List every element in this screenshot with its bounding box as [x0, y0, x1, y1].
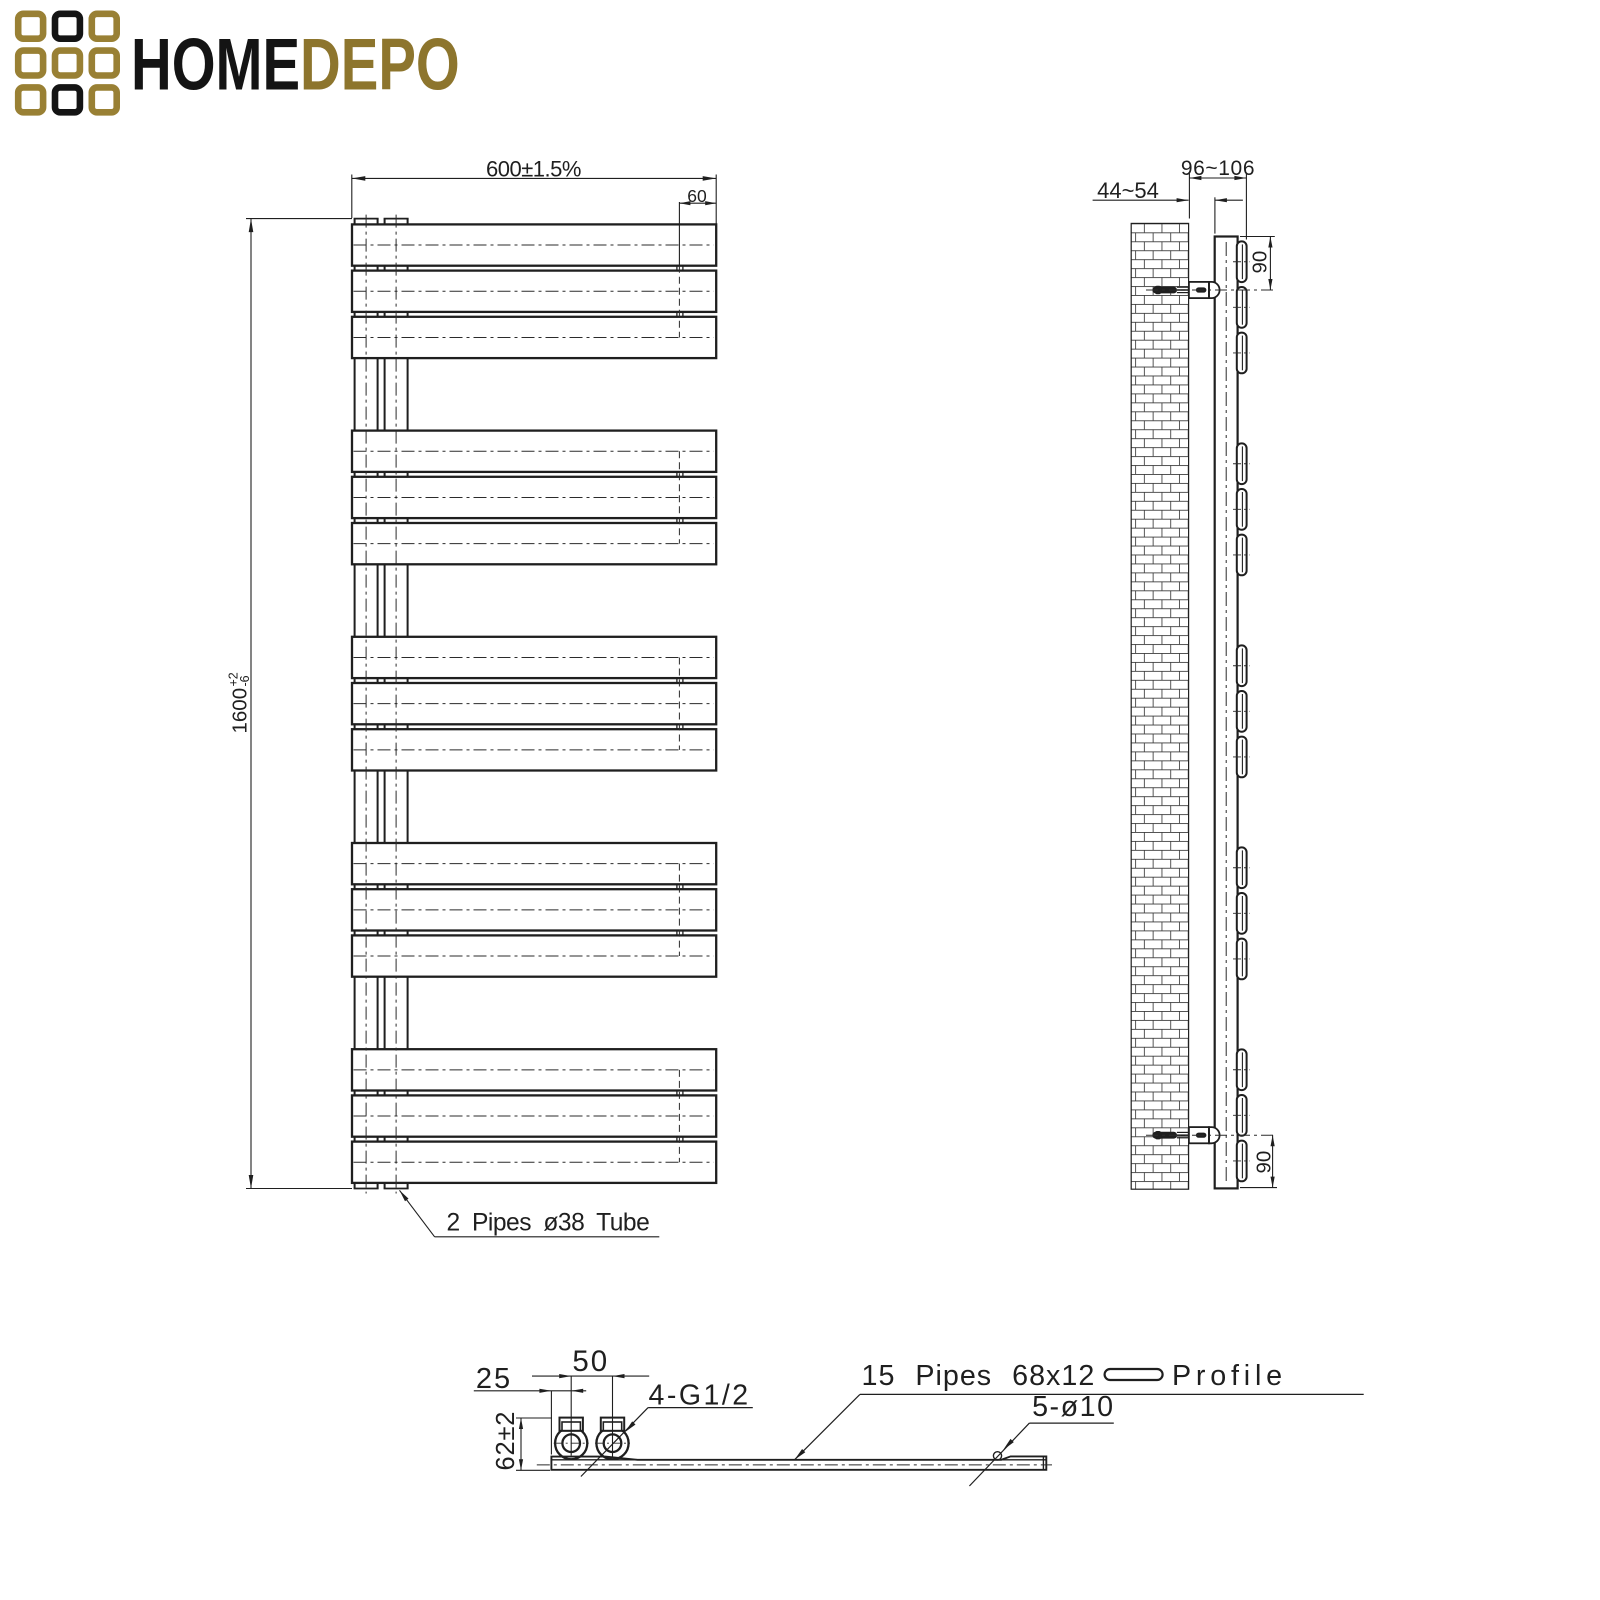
svg-text:-6: -6	[238, 675, 252, 686]
svg-text:2 Pipes ø38 Tube: 2 Pipes ø38 Tube	[447, 1210, 650, 1237]
svg-text:HOMEDEPO: HOMEDEPO	[131, 23, 460, 105]
svg-text:62±2: 62±2	[492, 1411, 520, 1471]
svg-text:1600: 1600	[229, 688, 252, 734]
svg-text:60: 60	[687, 186, 707, 206]
svg-text:90: 90	[1249, 251, 1272, 274]
svg-text:50: 50	[572, 1345, 609, 1378]
svg-text:96~106: 96~106	[1181, 157, 1255, 180]
svg-text:5-ø10: 5-ø10	[1032, 1391, 1114, 1423]
svg-text:4-G1/2: 4-G1/2	[649, 1379, 751, 1411]
svg-text:15 Pipes 68x12: 15 Pipes 68x12	[862, 1360, 1096, 1392]
svg-text:44~54: 44~54	[1097, 178, 1159, 203]
svg-text:25: 25	[476, 1363, 512, 1395]
svg-text:90: 90	[1253, 1151, 1276, 1174]
svg-text:600±1.5%: 600±1.5%	[486, 156, 581, 181]
svg-text:Profile: Profile	[1172, 1360, 1287, 1392]
